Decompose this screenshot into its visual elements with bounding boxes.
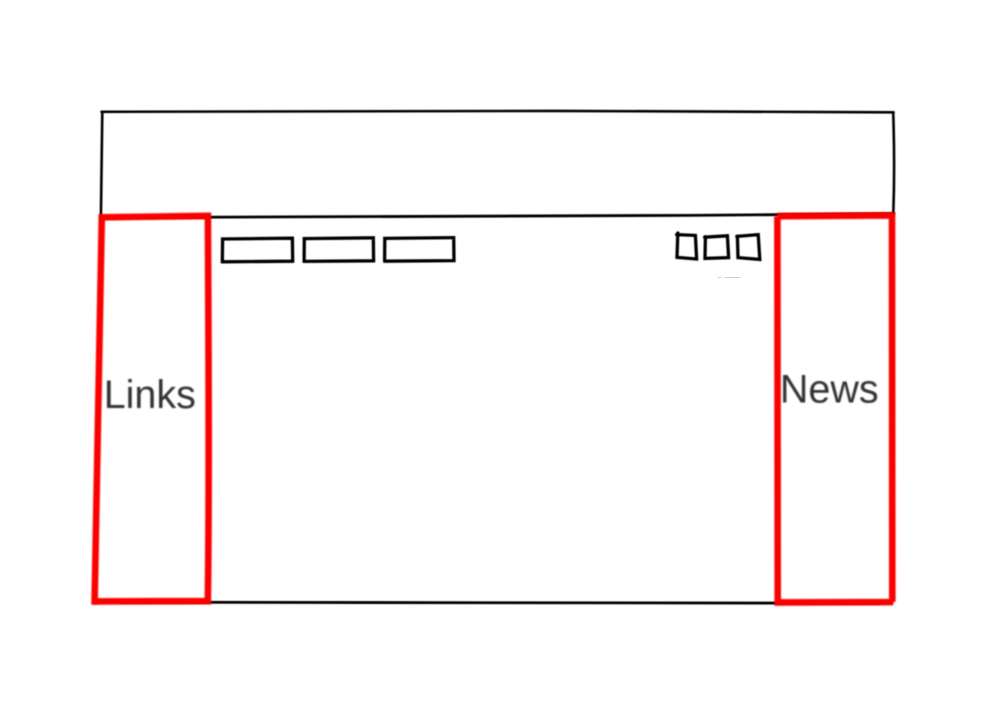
svg-text:News: News [780,367,879,411]
svg-text:Links: Links [104,373,196,417]
